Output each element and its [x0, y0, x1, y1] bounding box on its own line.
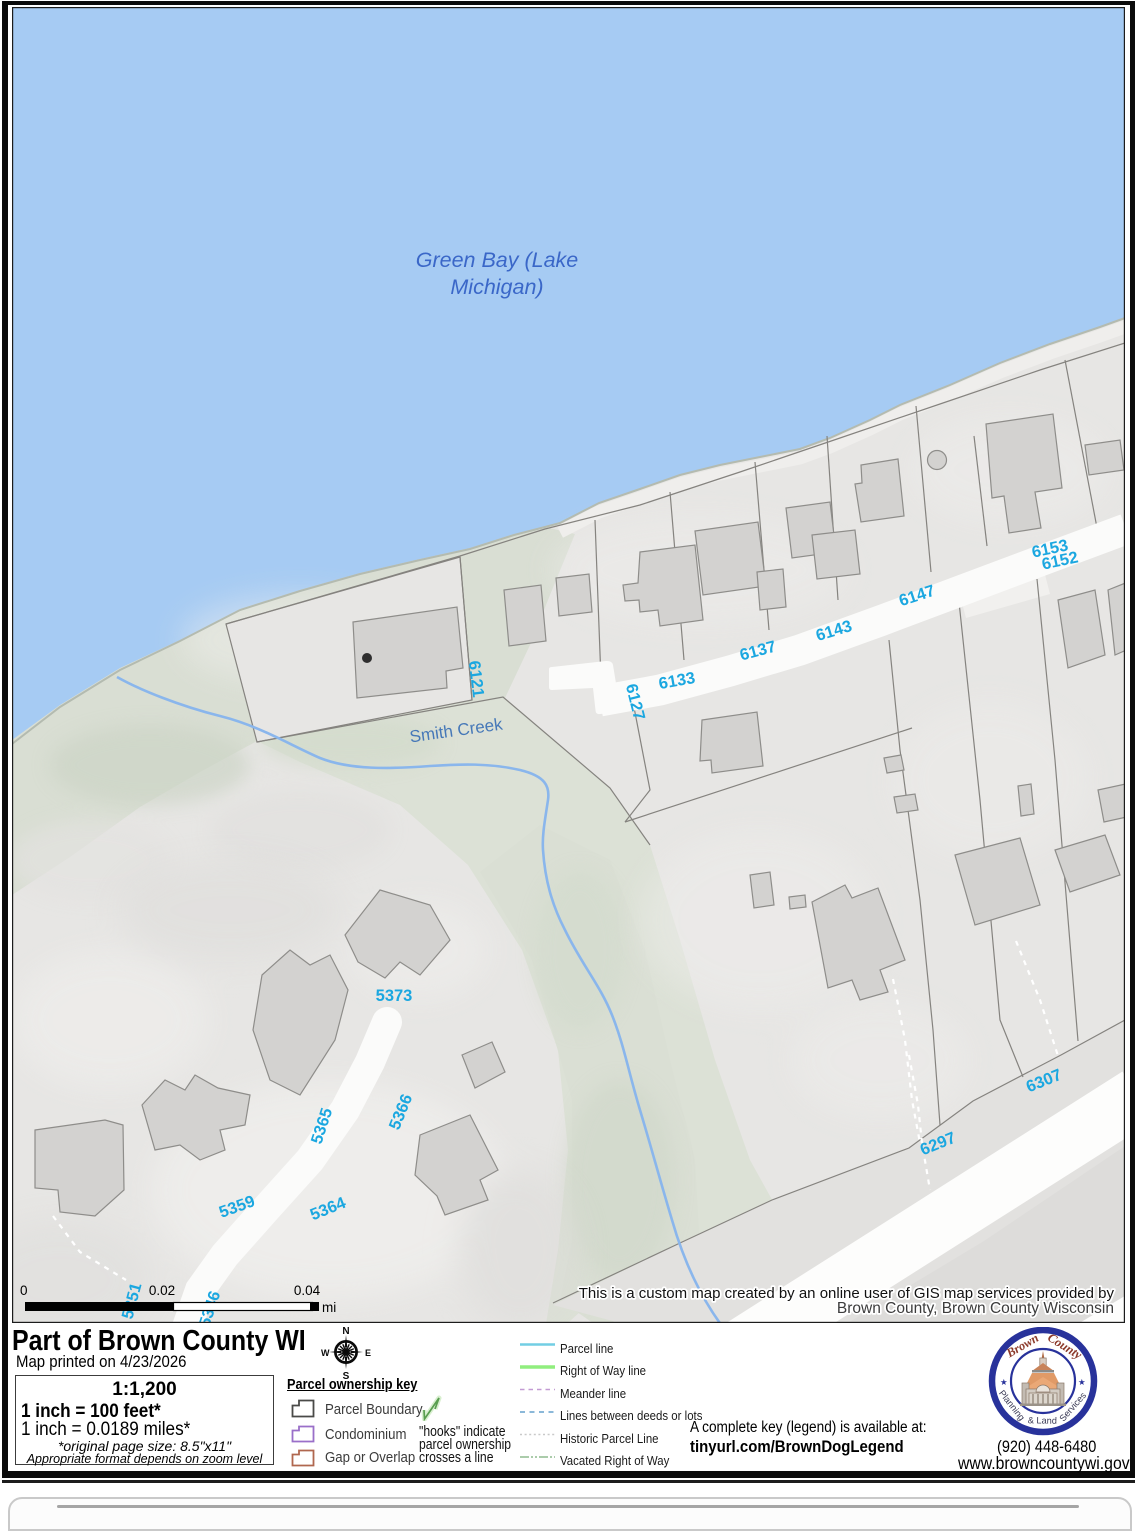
svg-text:★: ★ [1078, 1377, 1086, 1387]
svg-text:mi: mi [322, 1300, 336, 1315]
svg-text:Brown County, Brown County Wis: Brown County, Brown County Wisconsin [837, 1300, 1114, 1317]
svg-text:Michigan): Michigan) [450, 275, 543, 299]
svg-text:0: 0 [20, 1283, 28, 1298]
svg-text:5373: 5373 [376, 987, 413, 1005]
svg-text:W: W [321, 1348, 330, 1358]
svg-text:0.04: 0.04 [294, 1283, 321, 1298]
svg-text:★: ★ [1000, 1377, 1008, 1387]
svg-text:E: E [365, 1348, 371, 1358]
svg-text:0.02: 0.02 [149, 1283, 175, 1298]
svg-text:& Land: & Land [1028, 1415, 1057, 1426]
svg-text:Green Bay (Lake: Green Bay (Lake [416, 248, 579, 272]
